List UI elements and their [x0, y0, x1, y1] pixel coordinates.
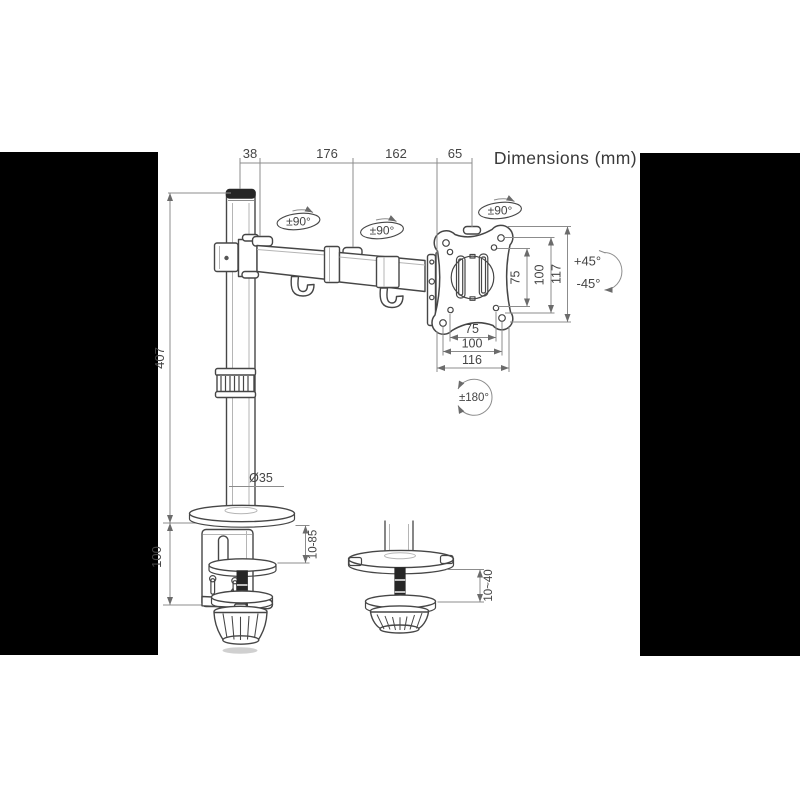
dim-grommet-range: 10~40	[483, 569, 495, 601]
swivel-symbol-3: ±90°	[478, 199, 522, 221]
rotation-symbol-180: ±180°	[458, 379, 492, 415]
dim-vesa-bottom-75: 75	[465, 322, 479, 336]
dim-top-65: 65	[448, 146, 462, 161]
grommet-range-dimension: 10~40	[438, 569, 496, 602]
tilt-annotation: +45° -45°	[574, 251, 622, 292]
dim-pole-height-407: 407	[152, 347, 167, 369]
swivel-arrow-2	[376, 219, 397, 222]
clamp-pressure-plate	[212, 591, 273, 603]
left-black-panel	[0, 152, 158, 655]
dim-top-176: 176	[316, 146, 338, 161]
swivel-label-3: ±90°	[488, 204, 513, 218]
swivel-arrow-3	[494, 199, 515, 202]
pole-collar	[216, 369, 256, 398]
pole-diameter-label: Ø35	[249, 471, 273, 485]
pole-top-cap	[226, 189, 256, 199]
dim-vesa-117: 117	[550, 264, 564, 284]
grommet-mount	[349, 521, 454, 634]
dim-vesa-75: 75	[509, 271, 523, 285]
clamp-upper-jaw	[209, 559, 276, 571]
desk-clamp-mount	[190, 505, 295, 653]
right-black-panel	[640, 153, 800, 656]
swivel-arrow-1	[293, 210, 314, 213]
swivel-symbol-2: ±90°	[360, 219, 404, 241]
dim-clamp-range: 10-85	[308, 530, 320, 559]
bracket-screw	[224, 256, 228, 260]
tilt-arrow	[604, 252, 622, 290]
cable-clip-2	[380, 288, 403, 308]
dim-vesa-bottom-100: 100	[462, 337, 483, 351]
swivel-symbol-1: ±90°	[276, 210, 320, 232]
dim-vesa-100: 100	[533, 265, 547, 286]
swivel-label-2: ±90°	[370, 224, 395, 238]
monitor-arm-dimension-drawing: Ø35	[0, 0, 800, 800]
dim-top-38: 38	[243, 146, 257, 161]
dim-top-162: 162	[385, 146, 407, 161]
swivel-label-1: ±90°	[286, 215, 311, 229]
drawing-title: Dimensions (mm)	[494, 148, 637, 168]
tilt-down-label: -45°	[577, 276, 601, 291]
rotation-label: ±180°	[459, 392, 489, 404]
dim-vesa-bottom-116: 116	[462, 353, 482, 367]
technical-drawing-canvas: Ø35	[0, 0, 800, 800]
vesa-plate	[432, 225, 513, 334]
dim-clamp-body-100: 100	[149, 546, 164, 568]
tilt-up-label: +45°	[574, 254, 601, 269]
arm-joint-1	[253, 237, 273, 247]
clamp-range-dimension: 10-85	[278, 526, 320, 564]
cable-clip-1	[291, 277, 314, 297]
